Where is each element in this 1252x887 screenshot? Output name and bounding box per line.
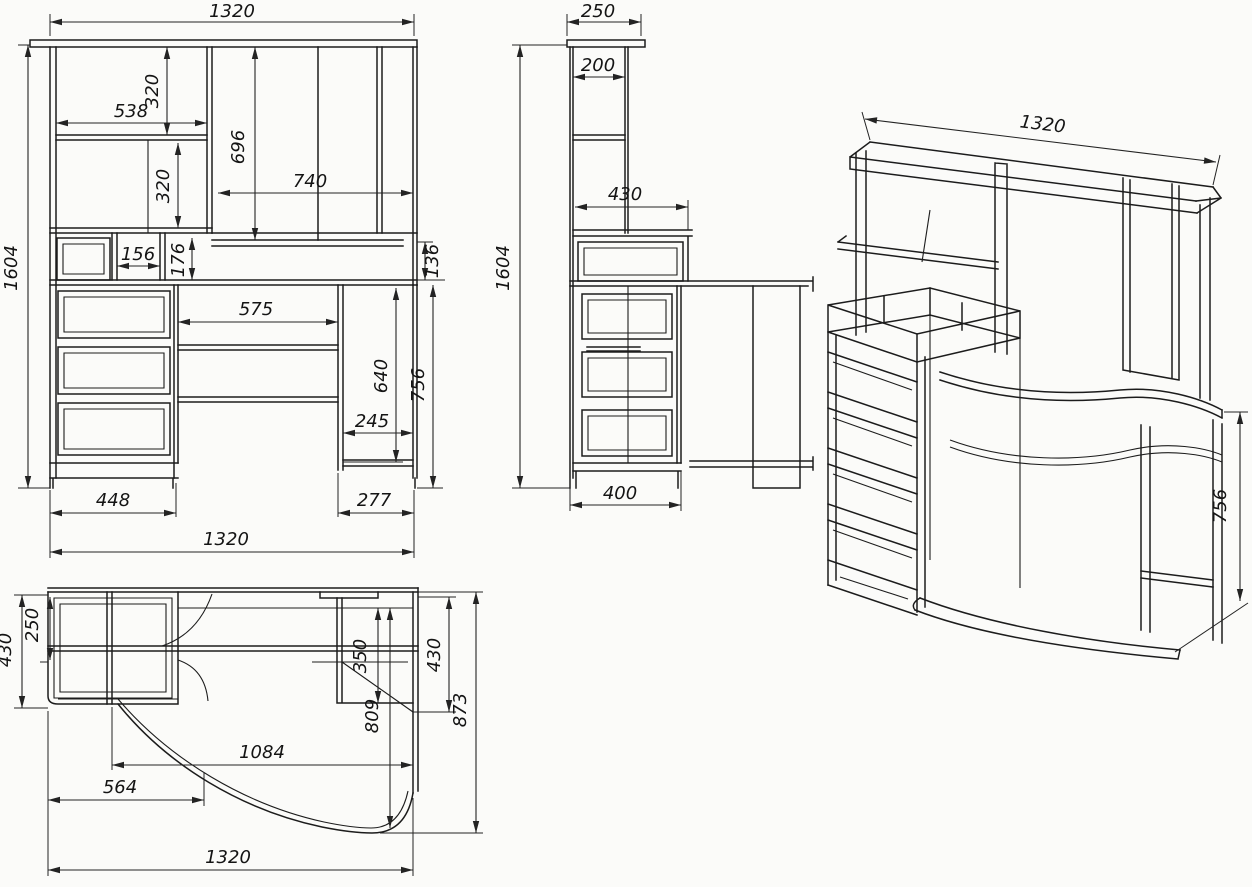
front-dimensions (18, 14, 445, 558)
dim-front-cubby-width: 156 (121, 244, 155, 265)
dim-front-width-top: 1320 (209, 1, 255, 22)
dim-front-upper-shelf-height: 320 (142, 74, 163, 108)
dim-side-height-overall: 1604 (493, 245, 514, 291)
dim-front-cubby-height: 176 (168, 243, 189, 277)
dim-plan-bay-depth: 350 (350, 639, 371, 673)
isometric-view: 1320 756 (828, 111, 1248, 659)
dim-front-niche-height: 696 (228, 130, 249, 164)
front-view: 1320 538 320 320 696 740 156 176 136 160… (1, 1, 445, 558)
dim-front-knee-width: 575 (239, 299, 273, 320)
dim-front-leg-width: 277 (357, 490, 392, 511)
dim-front-desk-height: 756 (408, 368, 429, 402)
dim-front-width-bottom: 1320 (203, 529, 249, 550)
dim-plan-curve-depth: 809 (362, 699, 383, 733)
side-dimensions (512, 14, 688, 511)
plan-view: 430 250 350 430 809 873 1084 564 1320 (0, 588, 483, 876)
dim-front-pedestal-width: 448 (96, 490, 130, 511)
side-view: 250 200 430 1604 400 (493, 1, 813, 511)
dim-plan-depth-overall: 873 (450, 693, 471, 727)
dim-plan-return-depth: 430 (0, 633, 16, 667)
iso-structure (828, 142, 1222, 659)
dim-front-rail-height: 136 (422, 244, 443, 278)
dim-plan-back-depth: 250 (22, 608, 43, 642)
dim-front-niche-width: 740 (293, 171, 327, 192)
dim-front-knee-height: 640 (371, 359, 392, 393)
dim-iso-desk-height: 756 (1210, 489, 1231, 523)
dim-front-height-overall: 1604 (1, 245, 22, 291)
dim-side-cabinet-depth: 400 (603, 483, 637, 504)
drawing-sheet: 1320 538 320 320 696 740 156 176 136 160… (0, 0, 1252, 887)
dim-plan-span: 1084 (239, 742, 285, 763)
dim-plan-right-depth: 430 (424, 638, 445, 672)
side-structure (567, 40, 813, 488)
dim-side-work-depth: 430 (608, 184, 642, 205)
dim-front-inner-shelf-height: 320 (153, 169, 174, 203)
dim-plan-width-overall: 1320 (205, 847, 251, 868)
dim-side-top-depth: 250 (581, 1, 615, 22)
dim-plan-cabinet-span: 564 (103, 777, 137, 798)
dim-front-foot-inset: 245 (355, 411, 389, 432)
iso-dimensions (862, 112, 1248, 652)
dim-side-shelf-depth: 200 (581, 55, 615, 76)
dim-iso-width: 1320 (1019, 111, 1067, 137)
technical-drawing-desk: 1320 538 320 320 696 740 156 176 136 160… (0, 0, 1252, 887)
